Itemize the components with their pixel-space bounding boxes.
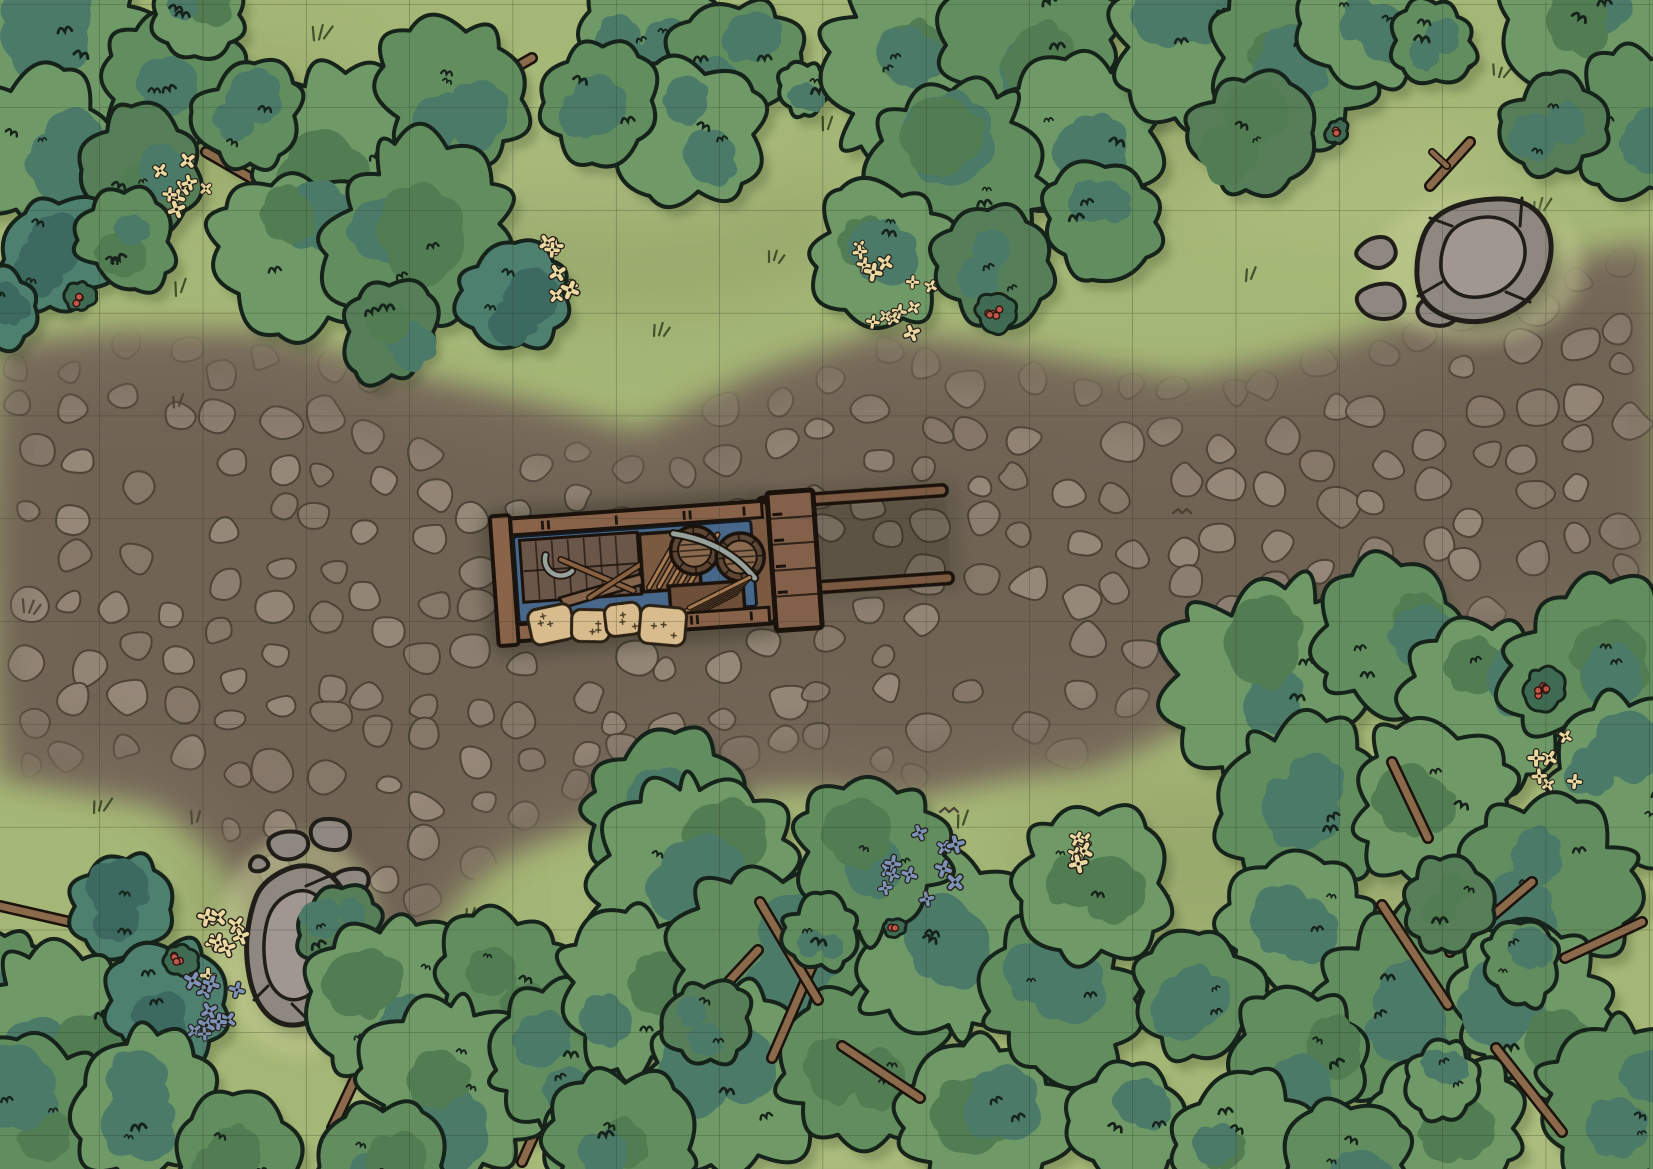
grid-overlay	[0, 0, 1653, 1169]
battle-map	[0, 0, 1653, 1169]
map-canvas[interactable]	[0, 0, 1653, 1169]
